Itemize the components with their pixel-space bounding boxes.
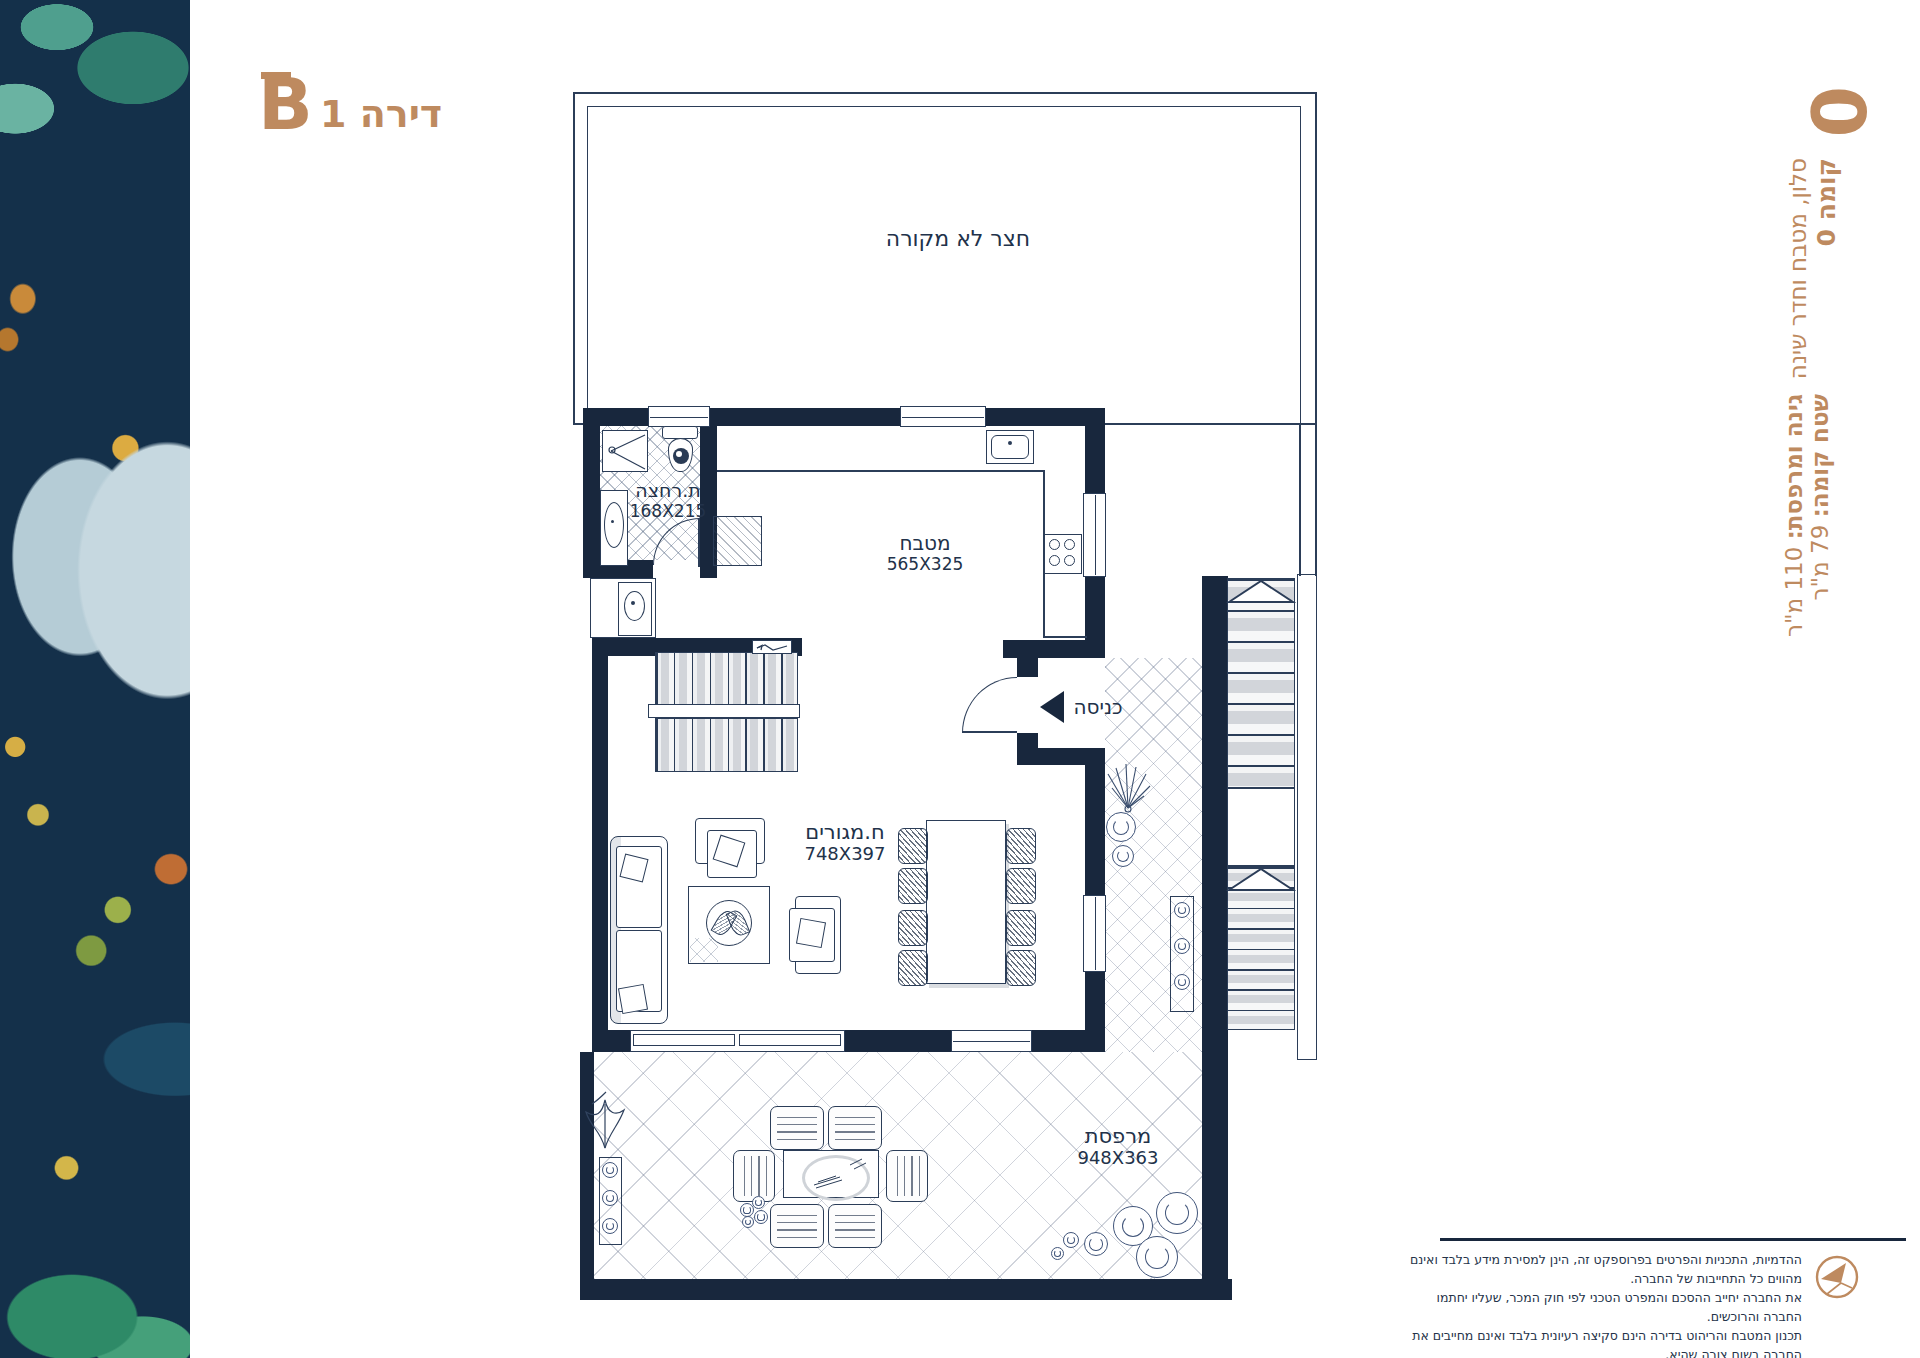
bathroom-dims: 168X215 <box>618 502 718 522</box>
plant-icon <box>1174 902 1190 918</box>
internal-stairs-upper-flight <box>655 652 798 706</box>
balcony-name: מרפסת <box>1058 1124 1178 1148</box>
outdoor-chair <box>828 1106 882 1150</box>
outdoor-chair <box>828 1204 882 1248</box>
sliding-door-pane <box>739 1034 841 1046</box>
rooms-line: סלון, מטבח וחדר שינה <box>1784 158 1812 379</box>
dining-chair <box>1006 910 1036 946</box>
internal-stairs-landing-divider <box>648 704 800 718</box>
plant-icon <box>602 1190 618 1206</box>
compass-icon <box>1814 1254 1860 1300</box>
sliding-door <box>630 1030 845 1052</box>
plant-icon <box>602 1162 618 1178</box>
outdoor-chair <box>770 1106 824 1150</box>
floor-number-big: 0 <box>1798 86 1882 138</box>
yard-right-line-outer <box>1315 425 1317 576</box>
yard-inner-outline <box>587 106 1301 425</box>
window-bathroom <box>648 406 710 427</box>
disclaimer-line: את החברה יחייב ההסכם והמפרט הטכני לפי חו… <box>1410 1288 1802 1326</box>
balcony-label: מרפסת 948X363 <box>1058 1124 1178 1169</box>
floor-line: קומה 0 <box>1812 158 1842 246</box>
outdoor-chair <box>733 1150 775 1202</box>
balcony-dims: 948X363 <box>1058 1148 1178 1169</box>
fan-plant-icon <box>1104 762 1152 814</box>
living-label: ח.מגורים 748X397 <box>785 820 905 865</box>
bathroom-door-leaf <box>698 518 700 567</box>
kitchen-counter-edge-bottom <box>1043 636 1087 638</box>
yard-label: חצר לא מקורה <box>848 226 1068 251</box>
plant-icon <box>602 1218 618 1234</box>
internal-stairs-lower-flight <box>655 718 798 772</box>
external-stairs-railing <box>1297 574 1317 1060</box>
sliding-door-pane <box>633 1034 735 1046</box>
bush-rose-icon <box>1063 1232 1079 1248</box>
tall-cabinet-icon <box>713 516 762 566</box>
bush-rose-icon <box>1136 1236 1178 1278</box>
window-kitchen <box>900 406 986 427</box>
unit-letter: B <box>258 68 313 140</box>
bush-rose-icon <box>1051 1247 1064 1260</box>
dining-chair <box>1006 868 1036 904</box>
plant-icon <box>1174 938 1190 954</box>
dining-chair <box>898 950 928 986</box>
sofa-pillow <box>618 984 648 1014</box>
dining-chair <box>898 910 928 946</box>
external-stairs-upper-flight <box>1227 578 1295 788</box>
wall-stairs-left <box>1202 576 1228 1300</box>
living-name: ח.מגורים <box>785 820 905 844</box>
entry-door-arc <box>962 677 1017 733</box>
outdoor-chair <box>886 1150 928 1202</box>
plant-icon <box>1174 974 1190 990</box>
outdoor-chair <box>770 1204 824 1248</box>
plant-icon <box>754 1210 768 1224</box>
disclaimer-line: ההדמיות, התכניות והפרטים בפרוספקט זה, הי… <box>1410 1250 1802 1288</box>
wall-entry-step <box>1017 658 1038 677</box>
footer-divider <box>1440 1238 1906 1241</box>
plant-icon <box>752 1196 765 1209</box>
shower-icon <box>602 430 648 472</box>
brochure-page: B דירה 1 0 קומה 0 סלון, מטבח וחדר שינה ש… <box>0 0 1920 1358</box>
bathroom-label: ת.רחצה 168X215 <box>618 480 718 521</box>
floor-area-label: שטח קומה: <box>1807 394 1833 517</box>
living-dims: 748X397 <box>785 844 905 865</box>
plant-icon <box>1112 845 1134 867</box>
entry-door-leaf <box>962 731 1017 733</box>
disclaimer-line: תכנון המטבח והריהוט בדירה הינם סקיצה רעי… <box>1410 1326 1802 1358</box>
plant-icon <box>742 1216 754 1228</box>
page-title: B דירה 1 <box>258 60 578 160</box>
wall-entry-lower <box>1017 733 1038 765</box>
washer-icon <box>618 582 652 636</box>
window-kitchen-east <box>1083 493 1106 577</box>
apartment-label: דירה 1 <box>320 92 442 136</box>
yard-right-line-inner <box>1299 425 1301 576</box>
floor-area-value: 79 מ"ר <box>1807 525 1833 601</box>
stove-icon <box>1044 534 1082 574</box>
kitchen-name: מטבח <box>870 532 980 555</box>
garden-area-label: גינה ומרפסת: <box>1781 394 1807 539</box>
plant-icon <box>1106 812 1136 842</box>
kitchen-label: מטבח 565X325 <box>870 532 980 575</box>
wall-terrace-bottom <box>580 1279 1232 1300</box>
dining-chair <box>1006 950 1036 986</box>
wall-entry-band <box>1038 748 1105 765</box>
garden-area-value: 110 מ"ר <box>1781 547 1807 637</box>
kitchen-dims: 565X325 <box>870 555 980 575</box>
window-living-south <box>951 1030 1032 1052</box>
bush-icon <box>582 1090 628 1150</box>
outdoor-table <box>783 1150 879 1198</box>
wall-left-bath <box>583 408 600 578</box>
botanical-art-strip <box>0 0 190 1358</box>
stairs-chevron-icon <box>1227 578 1295 604</box>
disclaimer-text: ההדמיות, התכניות והפרטים בפרוספקט זה, הי… <box>1410 1250 1802 1358</box>
wall-left-main <box>592 640 608 1052</box>
dining-chair <box>898 868 928 904</box>
external-stairs-landing <box>1227 788 1295 866</box>
floor-area-line: שטח קומה: 79 מ"ר <box>1806 394 1834 600</box>
entrance-arrow-icon <box>1040 691 1064 723</box>
window-living-east <box>1083 895 1106 972</box>
bush-rose-icon <box>1156 1192 1198 1234</box>
kitchen-counter-edge-top <box>717 470 1045 472</box>
stairs-direction-marker <box>752 640 792 654</box>
dining-chair <box>1006 828 1036 864</box>
garden-area-line: גינה ומרפסת: 110 מ"ר <box>1780 394 1808 637</box>
entrance-label: כניסה <box>1066 696 1130 719</box>
bathroom-name: ת.רחצה <box>618 480 718 502</box>
bush-rose-icon <box>1084 1232 1108 1256</box>
stairs-chevron-icon <box>1227 866 1295 892</box>
